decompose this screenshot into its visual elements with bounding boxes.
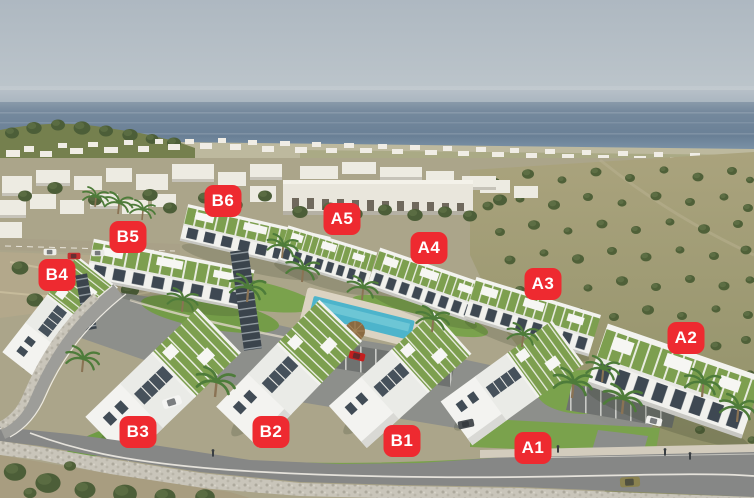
block-label-a5: A5 — [324, 203, 361, 235]
block-label-b2: B2 — [253, 416, 290, 448]
block-label-a4: A4 — [411, 232, 448, 264]
block-label-b1: B1 — [384, 425, 421, 457]
block-label-b3: B3 — [120, 416, 157, 448]
block-label-a3: A3 — [525, 268, 562, 300]
block-label-a2: A2 — [668, 322, 705, 354]
block-label-a1: A1 — [515, 432, 552, 464]
block-label-b5: B5 — [110, 221, 147, 253]
block-label-b6: B6 — [205, 185, 242, 217]
property-aerial-image: B6 A5 B5 A4 B4 A3 A2 B3 B2 B1 A1 — [0, 0, 754, 498]
block-label-b4: B4 — [39, 259, 76, 291]
